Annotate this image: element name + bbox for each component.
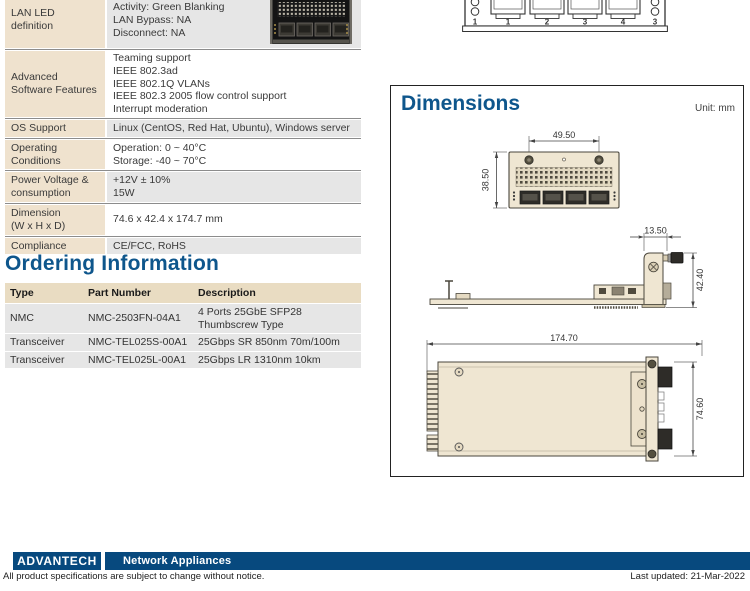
spec-row: Power Voltage & consumption +12V ± 10% 1… [5, 172, 361, 202]
ordering-information-section: Ordering Information Type Part Number De… [5, 252, 361, 369]
led-label: 3 [653, 18, 658, 27]
edge-connector [427, 371, 438, 431]
spec-value: 74.6 x 42.4 x 174.7 mm [107, 205, 361, 235]
spec-label: Dimension (W x H x D) [5, 205, 105, 235]
spec-value: +12V ± 10% 15W [107, 172, 361, 202]
vent-grid [516, 168, 612, 187]
datasheet-page: 1 1 2 3 4 3 LAN LED definition Activity:… [0, 0, 750, 591]
description-cell: 25Gbps SR 850nm 70m/100m [193, 334, 361, 351]
part-number-cell: NMC-TEL025L-00A1 [83, 352, 193, 369]
dimensions-title: Dimensions [401, 92, 520, 116]
table-row: Transceiver NMC-TEL025L-00A1 25Gbps LR 1… [5, 352, 361, 369]
thumbscrew-knob-bottom [658, 429, 672, 449]
table-row: Transceiver NMC-TEL025S-00A1 25Gbps SR 8… [5, 334, 361, 351]
spec-label: LAN LED definition [5, 0, 105, 48]
type-cell: Transceiver [5, 352, 83, 369]
spec-value: Linux (CentOS, Red Hat, Ubuntu), Windows… [107, 120, 361, 137]
column-header: Part Number [83, 283, 193, 303]
type-cell: Transceiver [5, 334, 83, 351]
thumbscrew-shaft [663, 255, 668, 261]
description-cell: 25Gbps LR 1310nm 10km [193, 352, 361, 369]
part-number-cell: NMC-TEL025S-00A1 [83, 334, 193, 351]
bracket-flange [646, 357, 658, 461]
standoff [445, 281, 453, 299]
description-cell: 4 Ports 25GbE SFP28 Thumbscrew Type [193, 304, 361, 333]
spec-label: Advanced Software Features [5, 51, 105, 117]
front-view-drawing: 49.50 [479, 130, 679, 222]
spec-row: Advanced Software Features Teaming suppo… [5, 51, 361, 117]
led-label: 1 [473, 18, 478, 27]
column-header: Type [5, 283, 83, 303]
disclaimer-text: All product specifications are subject t… [3, 571, 264, 582]
top-view-drawing: 174.70 7 [416, 332, 746, 474]
last-updated-text: Last updated: 21-Mar-2022 [630, 571, 745, 582]
ordering-title: Ordering Information [5, 252, 361, 276]
footer-bar: ADVANTECH Network Appliances [0, 552, 750, 570]
dim-side-width: 13.50 [644, 227, 667, 236]
category-bar: Network Appliances [105, 552, 750, 570]
thumbscrew-knob [671, 253, 683, 264]
advantech-logo: ADVANTECH [13, 552, 101, 570]
port-label: 3 [583, 18, 588, 27]
dim-top-length: 174.70 [550, 333, 578, 343]
sfp-port [530, 0, 564, 19]
sfp-port [568, 0, 602, 19]
spec-label: Power Voltage & consumption [5, 172, 105, 202]
spec-label: Operating Conditions [5, 140, 105, 170]
front-panel-line-drawing: 1 1 2 3 4 3 [462, 0, 668, 33]
port-label: 1 [506, 18, 511, 27]
type-cell: NMC [5, 304, 83, 333]
thumbscrew-knob-top [658, 367, 672, 387]
spec-label: OS Support [5, 120, 105, 137]
spec-row: OS Support Linux (CentOS, Red Hat, Ubunt… [5, 120, 361, 137]
sfp-port [491, 0, 525, 19]
spec-row: Operating Conditions Operation: 0 ~ 40°C… [5, 140, 361, 170]
dim-front-width: 49.50 [553, 130, 576, 140]
dim-front-height: 38.50 [481, 169, 491, 192]
port-label: 2 [545, 18, 550, 27]
spec-row: Dimension (W x H x D) 74.6 x 42.4 x 174.… [5, 205, 361, 235]
led-circle [651, 0, 659, 6]
ordering-header-row: Type Part Number Description [5, 283, 361, 303]
port-label: 4 [621, 18, 626, 27]
led-circle [471, 8, 479, 16]
spec-value: Operation: 0 ~ 40°C Storage: -40 ~ 70°C [107, 140, 361, 170]
sfp-port [606, 0, 640, 19]
dimensions-panel: Dimensions Unit: mm 49.50 [390, 85, 744, 477]
part-number-cell: NMC-2503FN-04A1 [83, 304, 193, 333]
led-circle [471, 0, 479, 6]
led-circle [651, 8, 659, 16]
dim-top-width: 74.60 [695, 398, 705, 421]
table-row: NMC NMC-2503FN-04A1 4 Ports 25GbE SFP28 … [5, 304, 361, 333]
spec-value: Teaming support IEEE 802.3ad IEEE 802.1Q… [107, 51, 361, 117]
unit-label: Unit: mm [695, 103, 735, 114]
ordering-table: Type Part Number Description NMC NMC-250… [5, 283, 361, 368]
side-view-drawing: 13.50 42.40 [416, 227, 746, 317]
dim-side-height: 42.40 [695, 269, 705, 292]
column-header: Description [193, 283, 361, 303]
bracket [644, 253, 663, 305]
led-panel-photo [270, 0, 352, 45]
pcb [430, 299, 666, 305]
card-body [438, 362, 646, 456]
